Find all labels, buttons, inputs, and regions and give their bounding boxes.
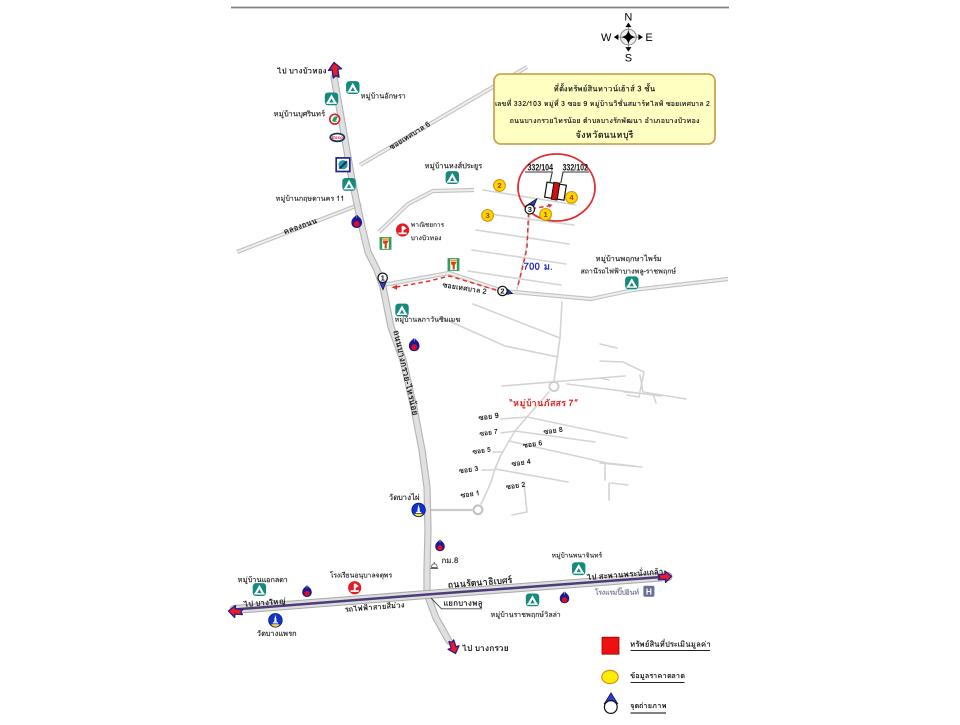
svg-text:3: 3 — [485, 211, 489, 220]
svg-text:3: 3 — [528, 205, 532, 214]
svg-text:2: 2 — [497, 181, 501, 190]
svg-text:332/102: 332/102 — [563, 162, 589, 172]
svg-text:Esso: Esso — [332, 135, 343, 140]
svg-text:S: S — [625, 52, 632, 64]
svg-text:W: W — [601, 32, 612, 44]
svg-text:2: 2 — [500, 287, 504, 296]
svg-text:H: H — [646, 586, 652, 596]
svg-text:N: N — [624, 12, 632, 24]
svg-text:332/104: 332/104 — [528, 162, 554, 172]
svg-text:E: E — [645, 32, 652, 44]
svg-text:1: 1 — [381, 273, 385, 282]
